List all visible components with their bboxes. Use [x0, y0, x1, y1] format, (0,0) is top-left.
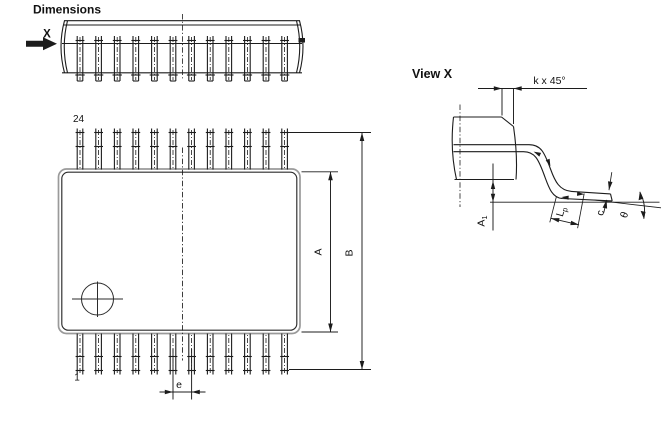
dim-e [160, 349, 206, 400]
dim-Lp-label: Lp [554, 205, 570, 218]
pin-1-label: 1 [74, 373, 80, 384]
dim-k45 [478, 86, 587, 124]
dim-A1-label: A1 [476, 215, 490, 226]
drawing-title: Dimensions [33, 3, 101, 17]
pin-24-label: 24 [73, 114, 85, 125]
mold-gate-mark [299, 38, 306, 43]
plan-view: 24 1 A B e [59, 114, 372, 400]
package-dimension-drawing: Dimensions X [0, 0, 665, 429]
detail-view-title: View X [412, 67, 453, 81]
dim-e-label: e [176, 379, 182, 391]
dimension-drawing-page: Dimensions X [0, 0, 665, 429]
dim-c-label: c [594, 209, 607, 217]
lead-profile [454, 145, 613, 201]
detail-body [452, 105, 516, 208]
pin-1-indicator [72, 282, 123, 318]
dim-A1 [491, 164, 495, 231]
view-direction-arrow-icon [26, 37, 57, 50]
dim-k45-label: k x 45° [533, 75, 565, 87]
dim-theta-label: θ [618, 210, 631, 220]
dim-B-label: B [344, 249, 356, 256]
chamfer-edge [502, 117, 514, 127]
view-direction-label: X [43, 29, 51, 41]
package-body-outer [59, 169, 301, 334]
dim-B [289, 133, 371, 370]
detail-view: View X k x 45° [412, 67, 661, 231]
dim-A-label: A [313, 248, 325, 255]
side-view [61, 14, 305, 81]
dim-c [603, 172, 613, 212]
